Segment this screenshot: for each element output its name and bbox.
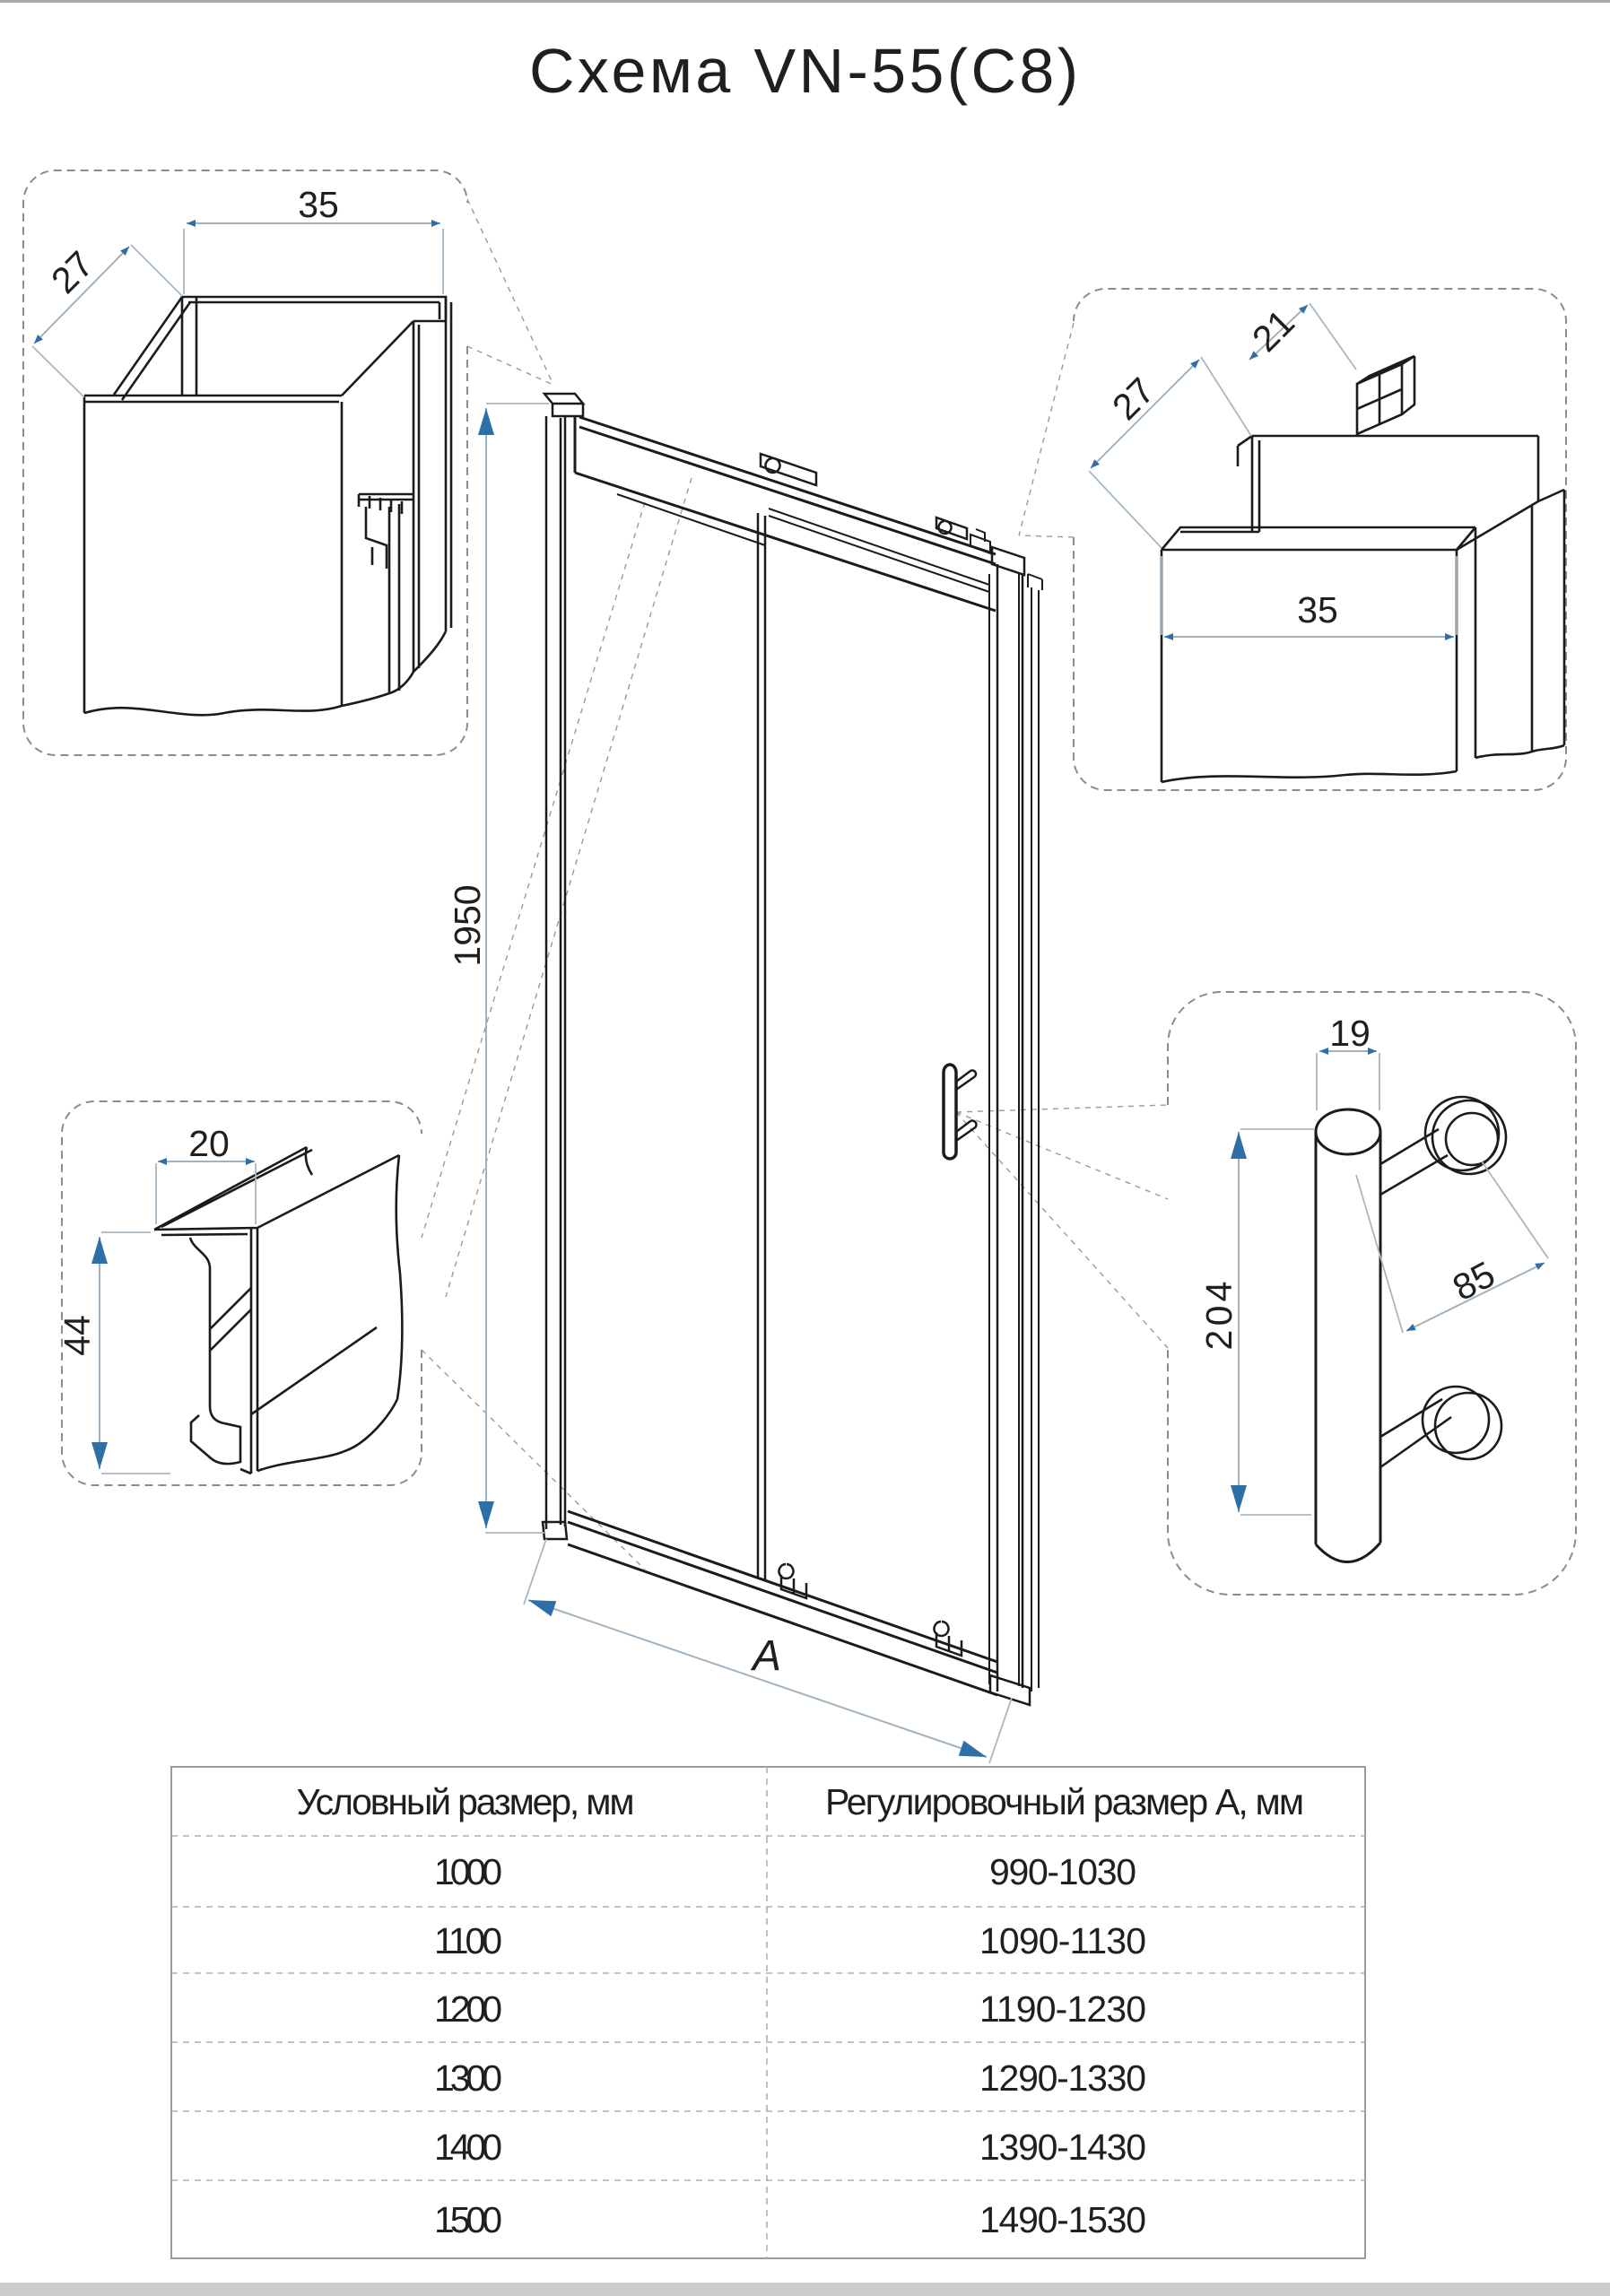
svg-text:Условный размер, мм: Условный размер, мм [297,1781,635,1822]
svg-text:19: 19 [1329,1013,1371,1054]
svg-text:1090-1130: 1090-1130 [979,1920,1146,1961]
svg-text:1190-1230: 1190-1230 [979,1988,1146,2030]
svg-text:204: 204 [1198,1282,1240,1351]
svg-text:1490-1530: 1490-1530 [979,2199,1146,2240]
svg-text:35: 35 [298,184,339,225]
svg-text:Регулировочный размер А, мм: Регулировочный размер А, мм [825,1781,1304,1822]
svg-text:1390-1430: 1390-1430 [979,2126,1146,2168]
svg-text:1290-1330: 1290-1330 [979,2057,1146,2099]
svg-text:20: 20 [188,1123,230,1164]
svg-text:1400: 1400 [434,2126,502,2168]
svg-text:44: 44 [57,1315,98,1356]
svg-text:1200: 1200 [434,1988,502,2030]
svg-text:1100: 1100 [434,1920,502,1961]
svg-text:Схема VN-55(C8): Схема VN-55(C8) [529,36,1078,106]
svg-text:1950: 1950 [447,884,488,966]
svg-text:1500: 1500 [434,2199,502,2240]
svg-text:1000: 1000 [434,1851,502,1892]
svg-text:1300: 1300 [434,2057,502,2099]
svg-text:990-1030: 990-1030 [989,1851,1136,1892]
svg-text:35: 35 [1297,589,1338,631]
svg-text:A: A [750,1632,781,1680]
